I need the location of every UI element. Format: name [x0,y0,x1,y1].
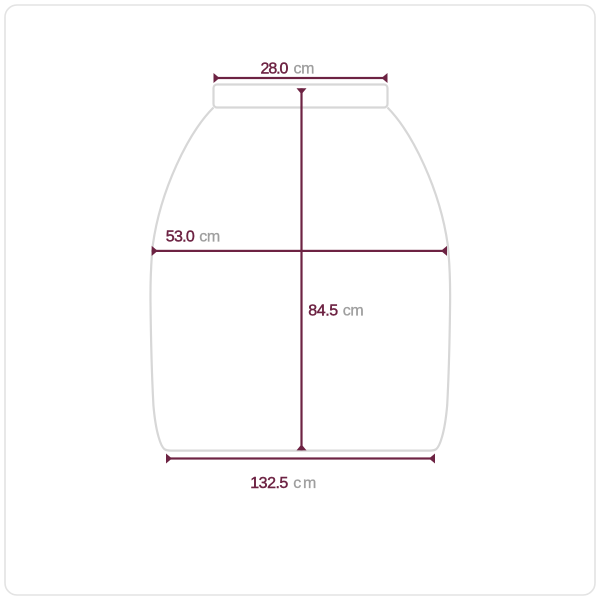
svg-text:28.0cm: 28.0cm [261,60,315,77]
svg-text:132.5cm: 132.5cm [250,475,316,492]
svg-text:53.0cm: 53.0cm [166,229,220,246]
svg-text:84.5cm: 84.5cm [308,303,364,320]
